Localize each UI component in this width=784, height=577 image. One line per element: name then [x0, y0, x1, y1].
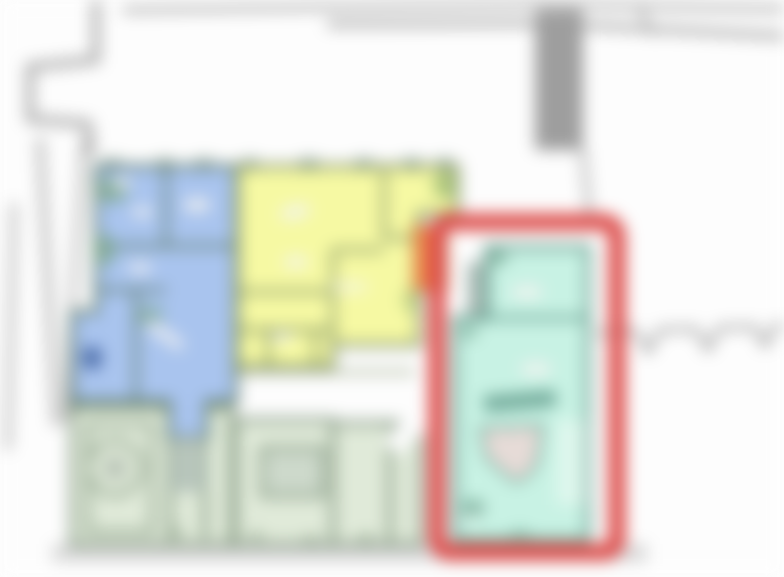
tree-blob: [433, 171, 457, 199]
label-blob: [128, 263, 152, 273]
label-blob: [183, 198, 211, 212]
pier-mark: [104, 158, 120, 170]
label-blob: [462, 515, 478, 525]
pier-mark: [196, 158, 212, 170]
label-blob: [131, 207, 153, 217]
label-blob: [330, 281, 370, 293]
cyan-light-room: [556, 420, 586, 505]
blue-stub-shadow: [170, 437, 206, 492]
label-blob: [520, 362, 552, 376]
door-mark: [250, 532, 262, 540]
structure-bar: [535, 10, 583, 150]
door-mark: [305, 536, 317, 544]
label-blob: [112, 178, 132, 188]
map-viewport[interactable]: [0, 0, 784, 577]
tree-blob: [460, 325, 478, 339]
tree-blob: [461, 499, 485, 517]
label-blob: [511, 285, 543, 299]
pier-mark: [243, 158, 257, 170]
blue-outline[interactable]: [72, 166, 236, 438]
door-mark: [360, 534, 372, 542]
tree-blob: [510, 529, 530, 541]
door-mark: [172, 528, 182, 538]
tree-blob: [92, 234, 116, 266]
green-inner-room: [262, 448, 324, 496]
pier-mark: [158, 158, 172, 170]
tree-blob: [402, 288, 418, 312]
map-canvas: [0, 0, 784, 577]
pier-mark: [404, 158, 420, 170]
label-blob: [270, 332, 294, 342]
dark-accent-blob: [82, 346, 102, 370]
unit-blue-building[interactable]: [72, 166, 236, 438]
pier-mark: [356, 158, 372, 170]
pier-mark: [300, 158, 318, 170]
pier-mark: [438, 158, 452, 170]
label-blob: [283, 256, 309, 268]
blurred-map-layer: [0, 0, 784, 577]
unit-green-buildings[interactable]: [72, 407, 421, 545]
round-feature-core: [103, 456, 127, 480]
tree-blob: [486, 251, 508, 265]
